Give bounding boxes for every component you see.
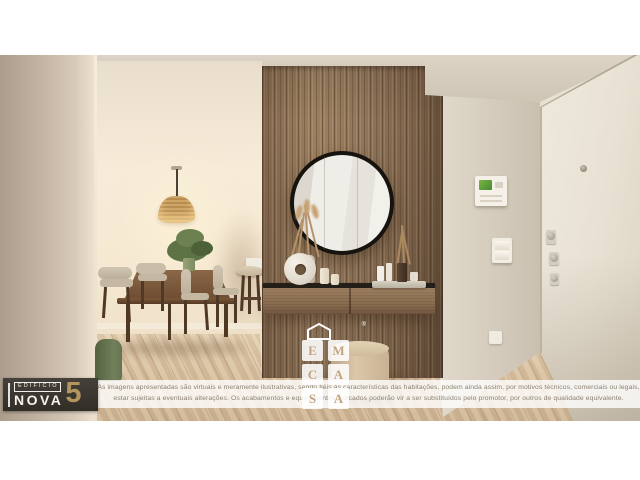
chair-leg	[161, 281, 164, 311]
stool-leg	[248, 276, 251, 314]
chair-back	[136, 263, 166, 274]
door-lock-plate	[549, 252, 559, 265]
perfume-bottle	[410, 272, 418, 281]
logo-accent-bar	[8, 383, 10, 407]
console-drawers	[263, 288, 435, 314]
baseboard	[95, 323, 262, 329]
light-switch	[492, 238, 512, 263]
door-peephole-icon	[580, 165, 587, 172]
switch-rocker	[495, 251, 509, 260]
table-floor-shadow	[112, 341, 247, 355]
table-leg	[168, 304, 171, 340]
chair-leg	[184, 300, 187, 334]
chair-leg	[234, 295, 237, 323]
stool-crossbar	[242, 297, 261, 300]
chair-seat	[213, 288, 239, 295]
dining-table-edge	[117, 298, 237, 304]
watermark-letter: A	[328, 388, 349, 409]
green-pouf	[95, 339, 122, 381]
left-wall	[0, 55, 97, 421]
watermark-letter: E	[302, 340, 323, 361]
logo-building-label: EDIFICIO	[14, 382, 61, 392]
mirror-reflection-line	[357, 157, 358, 249]
house-icon	[307, 323, 331, 340]
perfume-bottle	[377, 266, 384, 281]
door-handle	[547, 232, 555, 240]
donut-vase	[284, 253, 316, 285]
intercom-speaker	[480, 195, 502, 197]
mirror-reflection-line	[324, 157, 325, 249]
logo-name: NOVA	[14, 393, 63, 407]
logo-text: EDIFICIO NOVA	[14, 382, 63, 407]
chair-seat	[100, 279, 133, 287]
donut-vase-hole	[295, 264, 306, 275]
chair-back	[98, 267, 132, 279]
door-deadbolt	[551, 275, 558, 282]
watermark-letter: S	[302, 388, 323, 409]
reed-diffuser-bottle	[397, 263, 407, 282]
candle	[320, 268, 329, 284]
lamp-cord	[176, 169, 178, 198]
switch-rocker	[495, 241, 509, 250]
candle	[331, 274, 339, 285]
door-lock	[550, 254, 558, 262]
logo-number: 5	[65, 380, 81, 406]
table-leg	[224, 304, 228, 337]
bar-stool-seat	[236, 266, 263, 276]
intercom-button	[495, 182, 503, 188]
intercom-screen	[479, 180, 492, 190]
watermark-letter: C	[302, 364, 323, 385]
door-handle-plate	[546, 230, 556, 244]
perfume-bottle	[386, 263, 392, 281]
chair-seat	[138, 274, 167, 281]
drawer-seam	[349, 288, 351, 314]
chair-leg	[216, 295, 219, 327]
video-intercom	[475, 176, 507, 206]
render-screenshot: As imagens apresentadas são virtuais e m…	[0, 0, 640, 480]
pampas-plume	[304, 199, 310, 214]
chair-back	[213, 265, 223, 290]
decor-tray	[372, 281, 426, 288]
brand-watermark: ® E M C A S A	[296, 322, 372, 408]
watermark-letter: A	[328, 364, 349, 385]
rattan-pendant-lamp	[158, 196, 195, 223]
door-deadbolt-plate	[550, 273, 559, 285]
watermark-letter: M	[328, 340, 349, 361]
power-socket	[489, 331, 502, 344]
chair-back	[181, 269, 191, 296]
intercom-speaker	[480, 200, 502, 202]
chair-leg	[141, 281, 144, 309]
developer-logo: EDIFICIO NOVA 5	[3, 378, 98, 411]
door-frame-left	[540, 107, 542, 353]
chair-seat	[181, 293, 209, 300]
registered-mark: ®	[362, 322, 366, 328]
entrance-door	[540, 55, 640, 421]
